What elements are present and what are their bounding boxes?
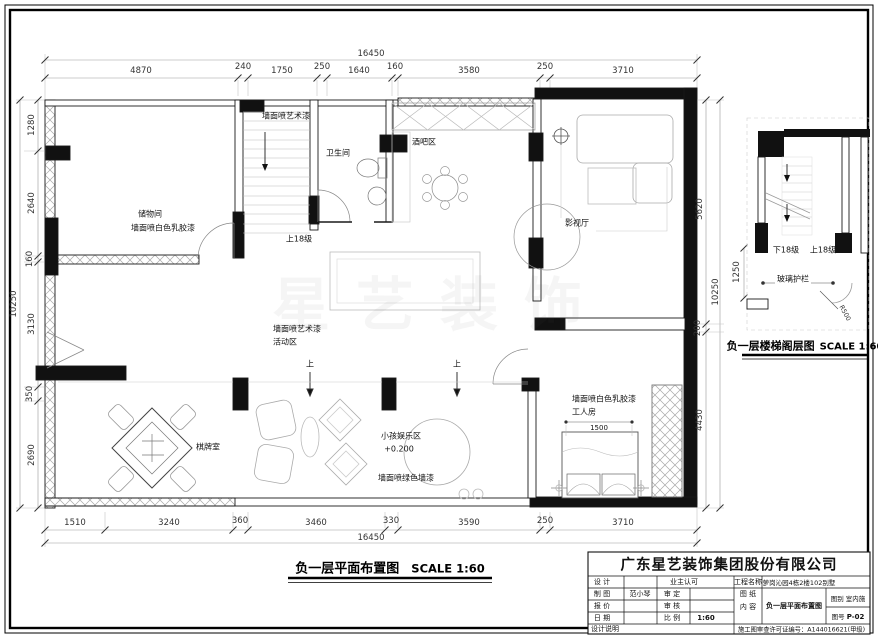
field-owner-approval: 业主认可: [670, 577, 698, 587]
field-approve: 审 定: [664, 589, 680, 599]
dim-bottom-8: 3710: [612, 518, 634, 528]
dim-right-1: 5620: [695, 198, 705, 220]
step-markers: [58, 372, 528, 396]
field-sheet-label-2: 内 容: [740, 602, 756, 612]
field-date: 日 期: [594, 613, 610, 623]
dim-left-2: 2640: [27, 192, 37, 214]
field-number: 图号 P-02: [832, 611, 865, 621]
dim-left-total: 10250: [9, 290, 19, 317]
label-bed-dim: 1500: [590, 425, 608, 433]
bathroom-fixtures: [318, 158, 393, 222]
dim-left-4: 3130: [27, 313, 37, 335]
dim-top-7: 3580: [458, 66, 480, 76]
plan-title: 负一层平面布置图SCALE 1:60: [295, 558, 484, 577]
label-media-room: 影视厅: [565, 220, 589, 229]
dim-top-9: 3710: [612, 66, 634, 76]
field-check: 审 核: [664, 601, 680, 611]
field-design: 设 计: [594, 577, 610, 587]
dim-top-total: 16450: [357, 49, 384, 59]
dim-stair-1250: 1250: [732, 261, 742, 283]
dim-top-6: 160: [387, 62, 403, 72]
label-railing: 玻璃护栏: [775, 276, 811, 285]
dim-right-2: 200: [693, 320, 703, 336]
label-detail-up: 上18级: [810, 247, 836, 256]
label-kids-finish: 墙面喷绿色墙漆: [378, 475, 434, 484]
drawing-sheet: 星艺装饰 16450 4870 240 1750 250 1640 160 35…: [0, 0, 878, 638]
dim-left-3: 160: [25, 251, 35, 267]
label-kids: 小孩娱乐区: [381, 433, 421, 442]
field-number-label: 图号: [832, 613, 845, 621]
field-draft-by: 范小琴: [630, 589, 651, 599]
dim-top-4: 250: [314, 62, 330, 72]
field-project-value: 萝岗沁园4栋2楼102别墅: [763, 577, 836, 587]
label-stair-finish: 墙面喷艺术漆: [262, 113, 310, 122]
field-category: 图别 室内施: [831, 593, 866, 603]
dim-right-3: 4430: [695, 409, 705, 431]
stair-detail-title-scale: SCALE 1:60: [820, 342, 878, 353]
dim-bottom-7: 250: [537, 516, 553, 526]
dim-right-total: 10250: [711, 278, 721, 305]
dim-bottom-3: 360: [232, 516, 248, 526]
stair-detail-title: 负一层楼梯阁层图SCALE 1:60: [727, 335, 878, 354]
field-permit: 施工图审查许可证编号：A144016621(甲级): [738, 625, 865, 634]
dim-left-1: 1280: [27, 114, 37, 136]
field-category-label: 图别: [831, 595, 844, 603]
label-up-1: 上: [306, 361, 314, 370]
field-scale-value: 1:60: [697, 614, 714, 622]
dim-bottom-6: 3590: [458, 518, 480, 528]
field-notes: 设计说明: [591, 624, 619, 634]
dim-bottom-2: 3240: [158, 518, 180, 528]
label-bathroom: 卫生间: [326, 150, 350, 159]
watermark: 星艺装饰: [272, 258, 608, 342]
label-chess-room: 棋牌室: [196, 444, 220, 453]
field-sheet-label-1: 图 纸: [740, 589, 756, 599]
label-activity-finish: 墙面喷艺术漆: [273, 326, 321, 335]
dim-bottom-1: 1510: [64, 518, 86, 528]
field-project-label: 工程名称: [734, 577, 762, 587]
dim-left-5: 350: [25, 386, 35, 402]
dim-bottom-5: 330: [383, 516, 399, 526]
main-stair: [243, 112, 310, 233]
dim-bottom-4: 3460: [305, 518, 327, 528]
stair-detail-title-text: 负一层楼梯阁层图: [727, 340, 815, 353]
label-detail-down: 下18级: [773, 247, 799, 256]
plan-title-scale: SCALE 1:60: [411, 562, 484, 576]
field-quote: 报 价: [594, 601, 610, 611]
dim-top-3: 1750: [271, 66, 293, 76]
label-activity: 活动区: [273, 339, 297, 348]
stair-detail-geometry: [747, 118, 870, 330]
field-number-value: P-02: [847, 613, 865, 621]
field-category-value: 室内施: [846, 595, 866, 603]
field-draft: 制 图: [594, 589, 610, 599]
label-worker-room: 工人房: [572, 409, 596, 418]
dim-bottom-total: 16450: [357, 533, 384, 543]
chess-room-furniture: [107, 403, 197, 493]
bar-area: [392, 103, 535, 222]
label-up-2: 上: [453, 361, 461, 370]
label-storage: 储物间: [138, 211, 162, 220]
dim-top-2: 240: [235, 62, 251, 72]
dim-top-5: 1640: [348, 66, 370, 76]
label-bar: 酒吧区: [412, 139, 436, 148]
label-kids-level: +0.200: [384, 446, 414, 455]
company-name: 广东星艺装饰集团股份有限公司: [621, 554, 838, 575]
plan-title-text: 负一层平面布置图: [295, 562, 399, 577]
dim-top-1: 4870: [130, 66, 152, 76]
dim-left-6: 2690: [27, 444, 37, 466]
label-storage-finish: 墙面喷白色乳胶漆: [131, 225, 195, 234]
label-worker-finish: 墙面喷白色乳胶漆: [572, 396, 636, 405]
label-stair-up: 上18级: [286, 236, 312, 245]
lounge-chairs: [253, 399, 367, 485]
stair-arrow: [262, 164, 268, 171]
dim-top-8: 250: [537, 62, 553, 72]
field-sheet-content: 负一层平面布置图: [766, 601, 822, 611]
field-scale-label: 比 例: [664, 613, 680, 623]
